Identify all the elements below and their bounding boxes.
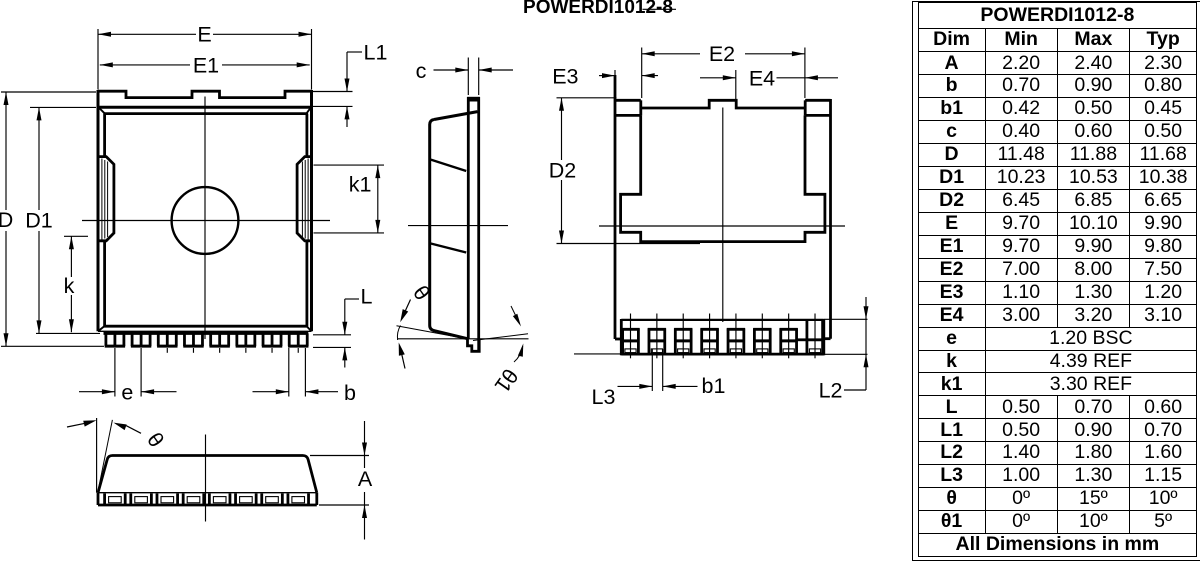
svg-text:D: D: [0, 208, 13, 232]
svg-text:E: E: [197, 23, 211, 47]
svg-text:c: c: [416, 59, 427, 83]
svg-text:L1: L1: [364, 41, 388, 65]
svg-text:E3: E3: [552, 65, 578, 89]
svg-text:L3: L3: [592, 385, 616, 409]
svg-text:k: k: [64, 274, 75, 298]
svg-text:L: L: [361, 285, 373, 309]
svg-text:θ: θ: [142, 428, 169, 452]
svg-text:b1: b1: [702, 374, 726, 398]
svg-text:e: e: [121, 380, 133, 404]
svg-text:k1: k1: [349, 173, 372, 197]
svg-text:E4: E4: [749, 66, 775, 90]
svg-text:D1: D1: [25, 209, 52, 233]
svg-text:b: b: [344, 381, 356, 405]
svg-text:L2: L2: [819, 378, 843, 402]
svg-text:E2: E2: [709, 42, 735, 66]
svg-text:D2: D2: [549, 159, 576, 183]
svg-text:A: A: [358, 467, 373, 491]
svg-text:E1: E1: [193, 54, 219, 78]
